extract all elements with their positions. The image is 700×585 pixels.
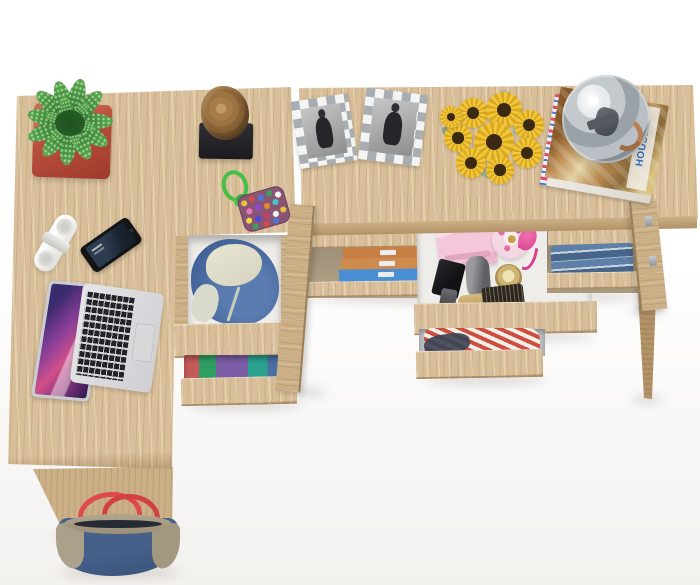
silver-laptop: [36, 276, 168, 406]
sunflower-center: [447, 113, 456, 122]
succulent-core: [55, 110, 85, 136]
sunflower-bouquet: [438, 90, 542, 186]
sunflower: [512, 138, 542, 168]
sunflower-center: [521, 147, 533, 159]
box-handle: [377, 272, 393, 277]
sunflower: [514, 110, 544, 140]
portrait-figure: [314, 116, 335, 149]
photo-frame-right: [358, 87, 428, 166]
laptop-keyboard-deck: [69, 283, 164, 393]
product-photo-scene: HOUSE BEAUTIFUL: [0, 0, 700, 585]
bw-portrait-photo: [300, 103, 347, 159]
glass-dome-lamp: [562, 75, 650, 163]
speaker-grille: [53, 215, 76, 238]
right-compartment-base: [547, 271, 651, 290]
sunflower-center: [494, 164, 505, 175]
smartphone-home-button: [129, 228, 135, 234]
potted-succulent: [20, 74, 120, 170]
sunflower: [456, 148, 486, 178]
sunflower-center: [465, 157, 477, 169]
sunflower: [486, 156, 514, 184]
sunflower-center: [523, 119, 535, 131]
hanging-handbag: [56, 492, 180, 578]
sunflower-center: [467, 107, 479, 119]
speaker-grille: [35, 247, 58, 270]
laptop-keyboard: [76, 291, 135, 381]
box-handle: [378, 261, 394, 266]
box-handle: [379, 250, 395, 255]
shirt-drawer-front: [416, 349, 543, 379]
sunflower-center: [497, 103, 511, 117]
door-hinge: [649, 255, 657, 266]
door-hinge: [645, 216, 653, 227]
sunflower-center: [486, 134, 502, 150]
bag-opening-rim: [64, 514, 172, 534]
sunflower: [440, 106, 462, 128]
laptop-trackpad: [131, 323, 156, 363]
portrait-figure: [382, 111, 404, 146]
bag-opening: [74, 520, 162, 528]
sunflower-center: [452, 132, 463, 143]
wood-stump: [201, 86, 249, 140]
bw-portrait-photo: [368, 98, 418, 157]
photo-frame-left: [290, 93, 358, 169]
